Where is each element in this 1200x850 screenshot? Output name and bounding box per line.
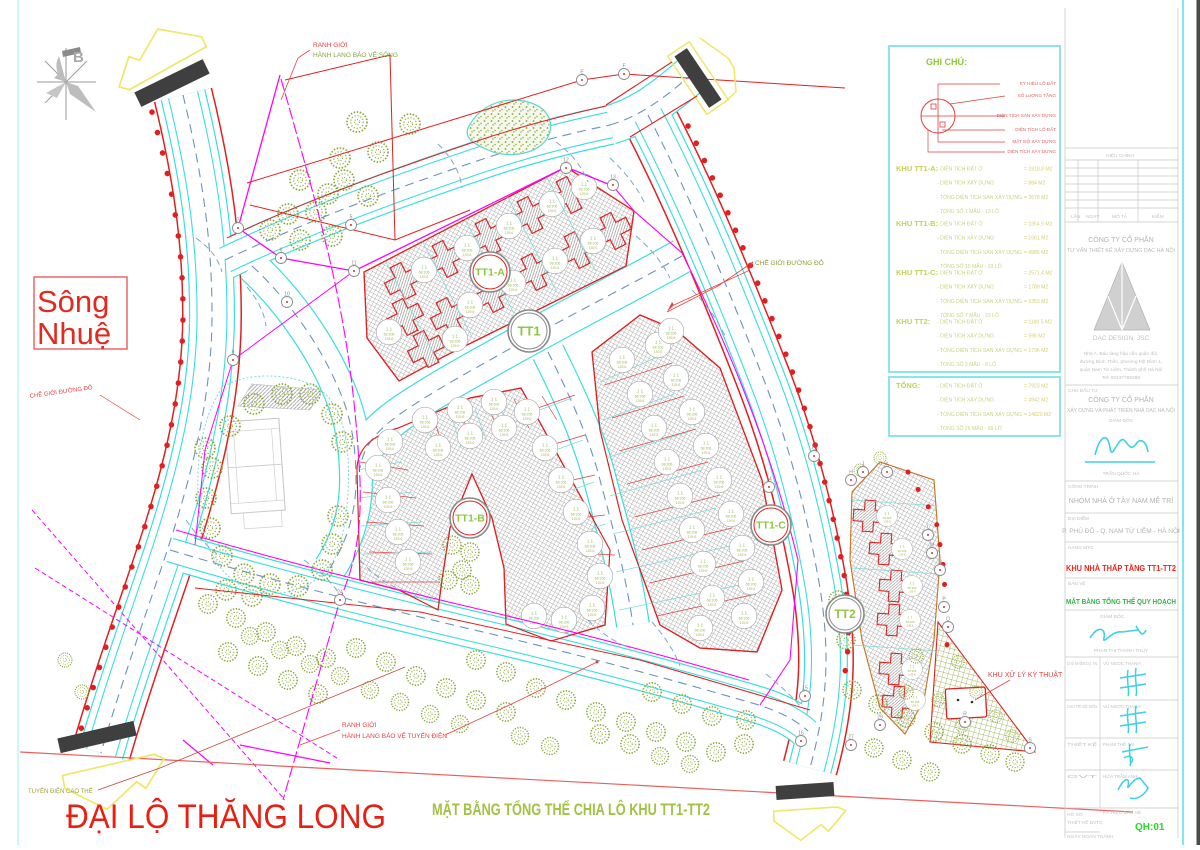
- svg-text:L: L: [927, 525, 930, 531]
- svg-text:16: 16: [798, 731, 804, 737]
- svg-text:- TỔNG SỐ 3 MẪU - 8 LÔ: - TỔNG SỐ 3 MẪU - 8 LÔ: [937, 361, 996, 368]
- svg-text:DIỆN TÍCH LÔ ĐẤT: DIỆN TÍCH LÔ ĐẤT: [1015, 125, 1056, 132]
- svg-text:= 1796 M2: = 1796 M2: [1024, 348, 1048, 354]
- svg-text:THIẾT KẾ: THIẾT KẾ: [1067, 742, 1097, 747]
- svg-text:KHU TT2:: KHU TT2:: [896, 317, 930, 326]
- svg-text:TT1-C: TT1-C: [756, 520, 786, 532]
- svg-text:Q: Q: [946, 617, 950, 623]
- svg-text:- DIỆN TÍCH XÂY DỰNG: - DIỆN TÍCH XÂY DỰNG: [937, 179, 994, 187]
- svg-text:KÝ HIỆU LÔ ĐẤT: KÝ HIỆU LÔ ĐẤT: [1020, 79, 1056, 86]
- svg-text:29: 29: [877, 715, 883, 721]
- svg-text:- DIỆN TÍCH ĐẤT Ở: - DIỆN TÍCH ĐẤT Ở: [937, 318, 983, 326]
- svg-text:= 884 M2: = 884 M2: [1024, 181, 1046, 187]
- svg-text:PHAN THỊ THANH THỦY: PHAN THỊ THANH THỦY: [1094, 647, 1149, 654]
- svg-text:- TỔNG DIỆN TÍCH SÀN XÂY DỰNG: - TỔNG DIỆN TÍCH SÀN XÂY DỰNG: [937, 346, 1022, 354]
- svg-text:- TỔNG SỐ 1 MẪU - 13 LÔ: - TỔNG SỐ 1 MẪU - 13 LÔ: [937, 208, 999, 215]
- svg-text:KHU XỬ LÝ KỲ THUẬT: KHU XỬ LÝ KỲ THUẬT: [988, 670, 1063, 679]
- svg-text:ĐỊA ĐIỂM: ĐỊA ĐIỂM: [1068, 515, 1089, 522]
- svg-text:TT1-A: TT1-A: [475, 267, 505, 279]
- svg-text:- TỔNG DIỆN TÍCH SÀN XÂY DỰNG: - TỔNG DIỆN TÍCH SÀN XÂY DỰNG: [937, 193, 1022, 201]
- svg-text:QH:01: QH:01: [1135, 822, 1165, 833]
- svg-text:- TỔNG DIỆN TÍCH SÀN XÂY DỰNG: - TỔNG DIỆN TÍCH SÀN XÂY DỰNG: [937, 410, 1022, 418]
- svg-text:CHỦ TRÌ BỘ MÔN: CHỦ TRÌ BỘ MÔN: [1067, 704, 1097, 709]
- svg-text:TỔNG:: TỔNG:: [896, 381, 920, 390]
- svg-text:CHỦ NHIỆM DỰ ÁN: CHỦ NHIỆM DỰ ÁN: [1067, 661, 1097, 666]
- svg-text:TƯ VẤN THIẾT KẾ XÂY DỰNG DAC H: TƯ VẤN THIẾT KẾ XÂY DỰNG DAC HÀ NỘI: [1067, 247, 1175, 254]
- svg-text:Sông: Sông: [37, 284, 109, 319]
- svg-text:H: H: [849, 470, 853, 476]
- svg-text:MẬT ĐỘ XÂY DỰNG: MẬT ĐỘ XÂY DỰNG: [1012, 138, 1056, 144]
- svg-text:MÔ TẢ: MÔ TẢ: [1112, 213, 1128, 220]
- svg-text:= 598 M2: = 598 M2: [1024, 334, 1046, 340]
- svg-text:GIÁM ĐỐC: GIÁM ĐỐC: [1109, 417, 1134, 424]
- svg-text:- DIỆN TÍCH ĐẤT Ở: - DIỆN TÍCH ĐẤT Ở: [937, 269, 983, 277]
- svg-text:15: 15: [802, 686, 808, 692]
- svg-text:F: F: [622, 64, 625, 70]
- svg-text:DAC DESIGN. JSC: DAC DESIGN. JSC: [1093, 335, 1150, 342]
- svg-text:TT1-B: TT1-B: [455, 513, 485, 525]
- svg-text:= 5353 M2: = 5353 M2: [1024, 299, 1048, 305]
- svg-text:G: G: [812, 446, 816, 452]
- svg-text:= 1818.8 M2: = 1818.8 M2: [1024, 167, 1053, 173]
- svg-text:9: 9: [232, 350, 235, 356]
- svg-text:- DIỆN TÍCH ĐẤT Ở: - DIỆN TÍCH ĐẤT Ở: [937, 165, 983, 173]
- svg-text:HÀNH LANG BẢO VỆ SÔNG: HÀNH LANG BẢO VỆ SÔNG: [313, 50, 398, 59]
- svg-text:- TỔNG DIỆN TÍCH SÀN XÂY DỰNG: - TỔNG DIỆN TÍCH SÀN XÂY DỰNG: [937, 297, 1022, 305]
- svg-text:7: 7: [237, 218, 240, 224]
- svg-text:RANH GIỚI: RANH GIỚI: [313, 40, 348, 49]
- svg-text:TRẦN QUỐC HÀ: TRẦN QUỐC HÀ: [1103, 470, 1141, 477]
- svg-text:TT2: TT2: [834, 607, 856, 621]
- svg-text:VŨ NGỌC THANH: VŨ NGỌC THANH: [1103, 660, 1141, 666]
- svg-text:P. PHÚ ĐÔ - Q. NAM TỪ LIÊM - H: P. PHÚ ĐÔ - Q. NAM TỪ LIÊM - HÀ NỘI: [1062, 526, 1180, 535]
- svg-text:- TỔNG DIỆN TÍCH SÀN XÂY DỰNG: - TỔNG DIỆN TÍCH SÀN XÂY DỰNG: [937, 248, 1022, 256]
- svg-text:NHÓM NHÀ Ở TÂY NAM MỄ TRÌ: NHÓM NHÀ Ở TÂY NAM MỄ TRÌ: [1069, 496, 1173, 505]
- svg-text:MẶT BẰNG TỔNG THỂ CHIA LÔ KHU: MẶT BẰNG TỔNG THỂ CHIA LÔ KHU TT1-TT2: [432, 800, 710, 819]
- svg-text:= 14820 M2: = 14820 M2: [1024, 412, 1051, 418]
- svg-text:HỨA TRẦM ANH: HỨA TRẦM ANH: [1103, 773, 1137, 779]
- svg-text:= 1661 M2: = 1661 M2: [1024, 236, 1048, 242]
- svg-text:quận Nam Từ Liêm, Thành phố Hà: quận Nam Từ Liêm, Thành phố Hà Nội: [1080, 367, 1163, 373]
- svg-text:= 4985 M2: = 4985 M2: [1024, 250, 1048, 256]
- svg-text:13: 13: [610, 175, 616, 181]
- svg-text:5: 5: [350, 215, 353, 221]
- svg-text:KIỂM: KIỂM: [1152, 213, 1164, 220]
- svg-text:- DIỆN TÍCH ĐẤT Ở: - DIỆN TÍCH ĐẤT Ở: [937, 382, 983, 390]
- svg-text:- DIỆN TÍCH XÂY DỰNG: - DIỆN TÍCH XÂY DỰNG: [937, 283, 994, 291]
- svg-text:CHỦ ĐẦU TƯ: CHỦ ĐẦU TƯ: [1068, 387, 1098, 394]
- svg-text:14: 14: [766, 477, 772, 483]
- svg-text:SỐ LưỢNG TẦNG: SỐ LưỢNG TẦNG: [1018, 92, 1057, 98]
- svg-text:- DIỆN TÍCH XÂY DỰNG: - DIỆN TÍCH XÂY DỰNG: [937, 396, 994, 404]
- svg-text:- DIỆN TÍCH XÂY DỰNG: - DIỆN TÍCH XÂY DỰNG: [937, 332, 994, 340]
- svg-text:Nhuệ: Nhuệ: [37, 316, 111, 351]
- svg-text:đường Đình Thôn, phường Mỹ Đìn: đường Đình Thôn, phường Mỹ Đình 1,: [1080, 359, 1162, 365]
- svg-text:- TỔNG SỐ 7 MẪU - 23 LÔ: - TỔNG SỐ 7 MẪU - 23 LÔ: [937, 312, 999, 319]
- svg-text:= 7923 M2: = 7923 M2: [1024, 384, 1048, 390]
- svg-text:NGÀY: NGÀY: [1086, 213, 1100, 220]
- svg-text:GVT: GVT: [1067, 774, 1099, 779]
- svg-text:KHU TT1-A:: KHU TT1-A:: [896, 164, 938, 173]
- svg-text:KHU NHÀ THẤP TẦNG TT1-TT2: KHU NHÀ THẤP TẦNG TT1-TT2: [1066, 563, 1177, 573]
- svg-text:12: 12: [563, 158, 569, 164]
- svg-text:CÔNG TRÌNH: CÔNG TRÌNH: [1068, 483, 1099, 490]
- svg-text:DIỆN TÍCH XÂY DỰNG: DIỆN TÍCH XÂY DỰNG: [1007, 147, 1056, 154]
- svg-text:= 1789 M2: = 1789 M2: [1024, 285, 1048, 291]
- svg-text:ĐẠI LỘ THĂNG LONG: ĐẠI LỘ THĂNG LONG: [66, 798, 386, 836]
- svg-text:= 2571.4 M2: = 2571.4 M2: [1024, 271, 1053, 277]
- svg-text:= 2678 M2: = 2678 M2: [1024, 195, 1048, 201]
- svg-text:R: R: [963, 712, 967, 718]
- svg-text:GHI CHÚ:: GHI CHÚ:: [926, 56, 967, 67]
- svg-text:- DIỆN TÍCH ĐẤT Ở: - DIỆN TÍCH ĐẤT Ở: [937, 220, 983, 228]
- svg-text:11: 11: [351, 261, 356, 267]
- svg-text:HỒ SƠ: HỒ SƠ: [1067, 811, 1083, 818]
- svg-text:HẠNG MỴC: HẠNG MỴC: [1068, 545, 1094, 551]
- svg-text:NGÀY HOÀN THÀNH: NGÀY HOÀN THÀNH: [1067, 833, 1114, 840]
- svg-text:27: 27: [848, 735, 854, 741]
- svg-text:Tel: 02437765288: Tel: 02437765288: [1102, 375, 1140, 381]
- svg-text:KHU TT1-C:: KHU TT1-C:: [896, 268, 938, 277]
- svg-text:24: 24: [337, 590, 343, 596]
- svg-text:= 4942 M2: = 4942 M2: [1024, 398, 1048, 404]
- svg-text:CHỄ GIỚI ĐƯỜNG ĐỎ: CHỄ GIỚI ĐƯỜNG ĐỎ: [755, 258, 824, 267]
- svg-text:DIỆN TÍCH SÀN XÂY DỰNG: DIỆN TÍCH SÀN XÂY DỰNG: [997, 111, 1057, 118]
- svg-text:Nhà A, Bảo tàng hậu cần quân đ: Nhà A, Bảo tàng hậu cần quân đội,: [1084, 351, 1158, 357]
- svg-text:- TỔNG SỐ 15 MẪU - 23 LÔ: - TỔNG SỐ 15 MẪU - 23 LÔ: [937, 263, 1002, 270]
- svg-text:BẢN VẼ: BẢN VẼ: [1068, 580, 1086, 587]
- svg-text:XÂY DỰNG VÀ PHÁT TRIỂN NHÀ DAC: XÂY DỰNG VÀ PHÁT TRIỂN NHÀ DAC HÀ NỘI: [1067, 407, 1175, 414]
- svg-text:B: B: [73, 49, 84, 66]
- svg-text:= 2354.5 M2: = 2354.5 M2: [1024, 222, 1053, 228]
- svg-text:- DIỆN TÍCH XÂY DỰNG: - DIỆN TÍCH XÂY DỰNG: [937, 234, 994, 242]
- svg-text:TUYẾN ĐIỆN CAO THẾ: TUYẾN ĐIỆN CAO THẾ: [28, 787, 93, 795]
- svg-text:RANH GIỚI: RANH GIỚI: [342, 720, 377, 729]
- svg-text:N: N: [938, 560, 942, 566]
- svg-text:- TỔNG SỐ 26 MẪU - 69 LÔ: - TỔNG SỐ 26 MẪU - 69 LÔ: [937, 425, 1002, 432]
- svg-text:M: M: [930, 543, 934, 549]
- svg-text:10: 10: [284, 292, 290, 298]
- svg-text:LẦN: LẦN: [1071, 213, 1081, 220]
- svg-text:GIÁM ĐỐC: GIÁM ĐỐC: [1100, 613, 1125, 620]
- svg-text:6: 6: [280, 248, 283, 254]
- svg-text:THIẾT KẾ BVTC: THIẾT KẾ BVTC: [1067, 819, 1103, 826]
- svg-text:MẶT BẰNG TỔNG THỂ QUY HOẠCH: MẶT BẰNG TỔNG THỂ QUY HOẠCH: [1066, 597, 1176, 606]
- svg-text:= 1180.5 M2: = 1180.5 M2: [1024, 320, 1052, 326]
- svg-text:TT1: TT1: [517, 324, 540, 339]
- svg-text:KHU TT1-B:: KHU TT1-B:: [896, 219, 938, 228]
